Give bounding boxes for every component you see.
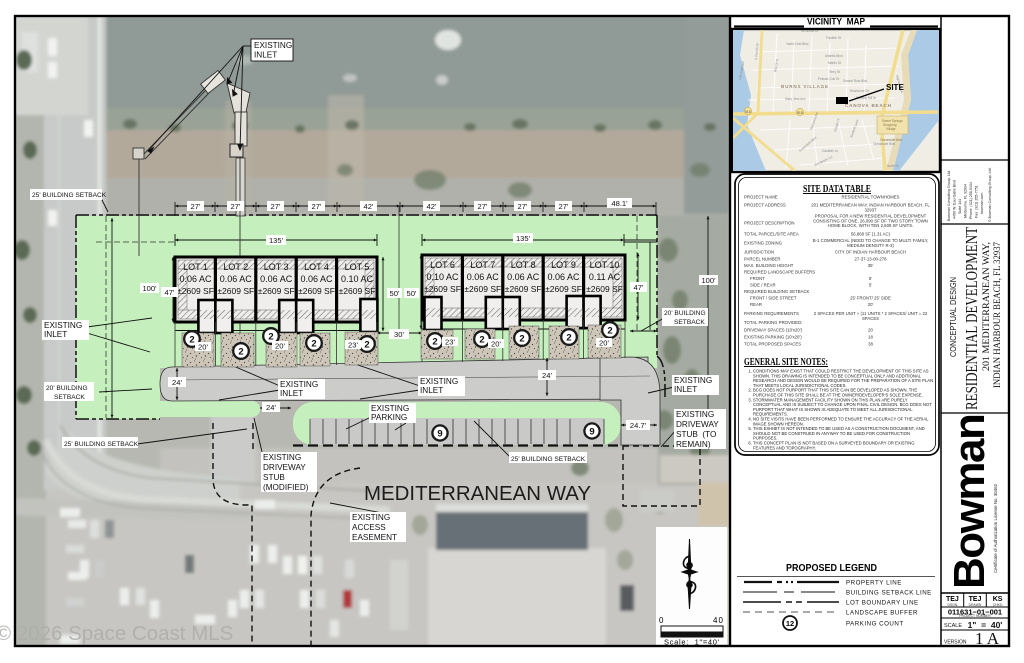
svg-text:STUB: STUB: [263, 473, 285, 482]
svg-text:50': 50': [390, 289, 400, 298]
svg-text:EXISTING: EXISTING: [674, 376, 712, 385]
svg-text:518: 518: [745, 110, 751, 114]
svg-text:27': 27': [559, 202, 569, 211]
svg-text:PARKING: PARKING: [371, 413, 407, 422]
svg-text:© 2026 Space Coast MLS: © 2026 Space Coast MLS: [0, 622, 233, 645]
svg-text:LOT 10: LOT 10: [590, 260, 620, 270]
svg-text:0: 0: [659, 616, 664, 625]
svg-text:DRIVEWAY: DRIVEWAY: [676, 420, 719, 429]
svg-text:100': 100': [142, 284, 157, 293]
svg-text:47': 47': [634, 283, 644, 292]
svg-text:EXISTING: EXISTING: [676, 410, 714, 419]
svg-text:DRAWN: DRAWN: [969, 603, 982, 607]
svg-text:24': 24': [172, 378, 182, 387]
svg-text:SITE DATA TABLE: SITE DATA TABLE: [803, 184, 871, 195]
svg-text:23': 23': [348, 341, 358, 350]
svg-text:±2609 SF: ±2609 SF: [258, 286, 295, 296]
svg-text:23': 23': [445, 338, 455, 347]
svg-text:LOT 7: LOT 7: [470, 260, 495, 270]
svg-text:20': 20': [599, 339, 609, 348]
svg-text:135': 135': [269, 236, 284, 245]
svg-text:Pelican Cub Dr: Pelican Cub Dr: [818, 77, 840, 81]
svg-text:EXISTING: EXISTING: [254, 41, 292, 50]
svg-text:25' BUILDING SETBACK: 25' BUILDING SETBACK: [511, 456, 586, 463]
svg-text:±2609 SF: ±2609 SF: [424, 284, 461, 294]
svg-text:LOT 1: LOT 1: [183, 262, 208, 272]
svg-text:LOT 5: LOT 5: [345, 262, 370, 272]
svg-text:INLET: INLET: [280, 389, 303, 398]
svg-text:24.7': 24.7': [630, 421, 647, 430]
svg-text:VERSION: VERSION: [944, 640, 967, 646]
svg-text:INLET: INLET: [44, 330, 67, 339]
svg-text:MEDITERRANEAN WAY: MEDITERRANEAN WAY: [364, 483, 591, 505]
svg-text:Yacht Club Blvd: Yacht Club Blvd: [786, 42, 809, 46]
svg-text:INLET: INLET: [254, 51, 277, 60]
svg-text:Rushmore Dr: Rushmore Dr: [850, 89, 870, 93]
svg-text:EXISTING: EXISTING: [371, 404, 409, 413]
svg-text:GENERAL SITE NOTES:: GENERAL SITE NOTES:: [744, 357, 828, 368]
svg-text:PROPERTY LINE: PROPERTY LINE: [846, 580, 902, 587]
svg-text:9: 9: [437, 429, 442, 440]
svg-text:EXISTING: EXISTING: [263, 453, 301, 462]
svg-text:Village: Village: [886, 127, 896, 131]
svg-text:Sunset Row Blvd: Sunset Row Blvd: [843, 79, 867, 83]
svg-text:0.06 AC: 0.06 AC: [300, 274, 333, 284]
svg-text:0.06 AC: 0.06 AC: [507, 272, 540, 282]
svg-text:SCALE: SCALE: [944, 623, 962, 629]
svg-text:0.06 AC: 0.06 AC: [220, 274, 253, 284]
svg-text:DSGN: DSGN: [948, 603, 958, 607]
svg-text:±2609 SF: ±2609 SF: [505, 284, 542, 294]
svg-text:20' BUILDING: 20' BUILDING: [46, 385, 88, 392]
svg-text:Cavalier Ln: Cavalier Ln: [822, 149, 838, 153]
svg-text:North Dr: North Dr: [887, 164, 900, 168]
svg-text:LOT 3: LOT 3: [264, 262, 289, 272]
svg-text:±2609 SF: ±2609 SF: [177, 286, 214, 296]
svg-text:20' BUILDING: 20' BUILDING: [664, 310, 706, 317]
svg-text:INDIAN HARBOUR BEACH, FL 32937: INDIAN HARBOUR BEACH, FL 32937: [993, 242, 1003, 388]
svg-text:SETBACK: SETBACK: [674, 319, 705, 326]
svg-text:INLET: INLET: [674, 385, 697, 394]
svg-text:25' BUILDING SETBACK: 25' BUILDING SETBACK: [64, 441, 139, 448]
svg-text:011631−01−001: 011631−01−001: [948, 608, 1002, 617]
svg-text:2: 2: [268, 332, 273, 343]
svg-text:201 MEDITERRANEAN WAY,: 201 MEDITERRANEAN WAY,: [982, 242, 992, 371]
svg-text:25' BUILDING SETBACK: 25' BUILDING SETBACK: [32, 192, 107, 199]
svg-text:0.06 AC: 0.06 AC: [179, 274, 212, 284]
svg-text:±2609 SF: ±2609 SF: [545, 284, 582, 294]
svg-text:135': 135': [516, 234, 531, 243]
svg-text:0.10 AC: 0.10 AC: [341, 274, 374, 284]
svg-text:EXISTING: EXISTING: [420, 377, 458, 386]
svg-text:2: 2: [311, 339, 316, 350]
svg-text:Melbourne, FL 32934: Melbourne, FL 32934: [964, 184, 968, 218]
svg-text:Bowman: Bowman: [945, 415, 994, 589]
svg-text:0.10 AC: 0.10 AC: [426, 272, 459, 282]
svg-text:2: 2: [364, 340, 369, 351]
svg-text:0.06 AC: 0.06 AC: [260, 274, 293, 284]
svg-text:27': 27': [478, 202, 488, 211]
svg-text:bowman.com: bowman.com: [980, 193, 984, 214]
svg-text:Fax: (321) 255-7751: Fax: (321) 255-7751: [975, 185, 979, 218]
svg-text:518: 518: [797, 111, 803, 115]
svg-text:Certificate of Authorization L: Certificate of Authorization License No.…: [993, 483, 998, 573]
svg-text:ACCESS: ACCESS: [352, 523, 386, 532]
svg-text:2: 2: [566, 333, 571, 344]
svg-text:Freddie St: Freddie St: [826, 36, 841, 40]
svg-text:47': 47': [165, 288, 175, 297]
svg-text:2: 2: [519, 334, 524, 345]
svg-text:CANOVA BEACH: CANOVA BEACH: [845, 103, 892, 108]
svg-text:27': 27': [518, 202, 528, 211]
svg-text:STUB (TO: STUB (TO: [676, 430, 716, 439]
svg-text:SITE: SITE: [886, 83, 904, 92]
svg-text:VICINITY MAP: VICINITY MAP: [807, 17, 865, 27]
svg-text:CONCEPTUAL DESIGN: CONCEPTUAL DESIGN: [948, 277, 958, 357]
svg-text:30': 30': [394, 330, 404, 339]
svg-text:±2609 SF: ±2609 SF: [217, 286, 254, 296]
svg-text:LOT 6: LOT 6: [430, 260, 455, 270]
svg-text:±2609 SF: ±2609 SF: [586, 284, 623, 294]
svg-text:27': 27': [191, 202, 201, 211]
svg-text:LOT 4: LOT 4: [304, 262, 329, 272]
svg-text:2: 2: [607, 326, 612, 337]
svg-text:BUILDING SETBACK LINE: BUILDING SETBACK LINE: [846, 590, 932, 597]
svg-text:40: 40: [713, 616, 724, 625]
svg-text:DRIVEWAY: DRIVEWAY: [263, 463, 306, 472]
svg-text:0.11 AC: 0.11 AC: [589, 272, 621, 282]
svg-text:Atlantis Blvd: Atlantis Blvd: [825, 54, 843, 58]
svg-text:9: 9: [589, 427, 594, 438]
svg-text:42': 42': [364, 202, 374, 211]
svg-text:INLET: INLET: [420, 386, 443, 395]
svg-text:27': 27': [271, 202, 281, 211]
svg-text:PROPOSED LEGEND: PROPOSED LEGEND: [786, 562, 877, 574]
svg-text:EXISTING: EXISTING: [280, 380, 318, 389]
svg-text:SETBACK: SETBACK: [54, 394, 85, 401]
svg-text:LANDSCAPE BUFFER: LANDSCAPE BUFFER: [846, 610, 918, 617]
svg-text:20': 20': [275, 342, 285, 351]
svg-text:EASEMENT: EASEMENT: [352, 533, 397, 542]
svg-text:48.1': 48.1': [611, 199, 628, 208]
svg-text:REMAIN): REMAIN): [676, 440, 711, 449]
svg-text:Bowman Consulting Group, Ltd.: Bowman Consulting Group, Ltd.: [947, 170, 951, 221]
svg-text:2: 2: [189, 335, 194, 346]
svg-text:0.06 AC: 0.06 AC: [547, 272, 580, 282]
svg-text:24': 24': [542, 371, 552, 380]
svg-text:2: 2: [432, 337, 437, 348]
svg-text:±2609 SF: ±2609 SF: [339, 286, 376, 296]
svg-text:EXISTING: EXISTING: [44, 321, 82, 330]
svg-text:12: 12: [786, 619, 794, 628]
svg-text:Terry St: Terry St: [829, 70, 840, 74]
svg-text:BURNS VILLAGE: BURNS VILLAGE: [781, 84, 829, 89]
svg-text:PARKING COUNT: PARKING COUNT: [846, 621, 904, 628]
svg-text:0.06 AC: 0.06 AC: [467, 272, 500, 282]
svg-text:Martin St: Martin St: [828, 61, 841, 65]
svg-text:20': 20': [198, 343, 208, 352]
svg-text:100': 100': [701, 276, 716, 285]
svg-text:±2609 SF: ±2609 SF: [298, 286, 335, 296]
svg-text:CHKD: CHKD: [993, 603, 1003, 607]
svg-text:27': 27': [231, 202, 241, 211]
svg-text:Oceanside Blvd: Oceanside Blvd: [880, 138, 903, 142]
svg-text:50': 50': [407, 289, 417, 298]
svg-text:42': 42': [427, 202, 437, 211]
svg-text:LOT 2: LOT 2: [223, 262, 248, 272]
svg-text:LOT 9: LOT 9: [551, 260, 576, 270]
svg-text:LOT 8: LOT 8: [511, 260, 536, 270]
svg-text:2: 2: [238, 347, 243, 358]
svg-text:Mary Jess Ave: Mary Jess Ave: [785, 97, 806, 101]
svg-text:27': 27': [312, 202, 322, 211]
svg-text:© Bowman Consulting Group, Ltd: © Bowman Consulting Group, Ltd.: [988, 167, 992, 222]
svg-text:Phone: (321) 255-5434: Phone: (321) 255-5434: [969, 182, 973, 219]
svg-text:EXISTING: EXISTING: [352, 513, 390, 522]
svg-text:(MODIFIED): (MODIFIED): [263, 483, 309, 492]
svg-text:±2609 SF: ±2609 SF: [464, 284, 501, 294]
svg-text:20': 20': [491, 340, 501, 349]
svg-text:Suite 144: Suite 144: [958, 199, 962, 214]
svg-text:LOT BOUNDARY LINE: LOT BOUNDARY LINE: [846, 600, 919, 607]
svg-text:24': 24': [266, 403, 276, 412]
svg-text:4450 W. Eau Gallie Blvd: 4450 W. Eau Gallie Blvd: [953, 180, 957, 219]
svg-text:Oceanside Blvd: Oceanside Blvd: [873, 142, 896, 146]
svg-text:2: 2: [479, 335, 484, 346]
svg-text:RESIDENTIAL DEVELOPMENT: RESIDENTIAL DEVELOPMENT: [962, 227, 981, 410]
